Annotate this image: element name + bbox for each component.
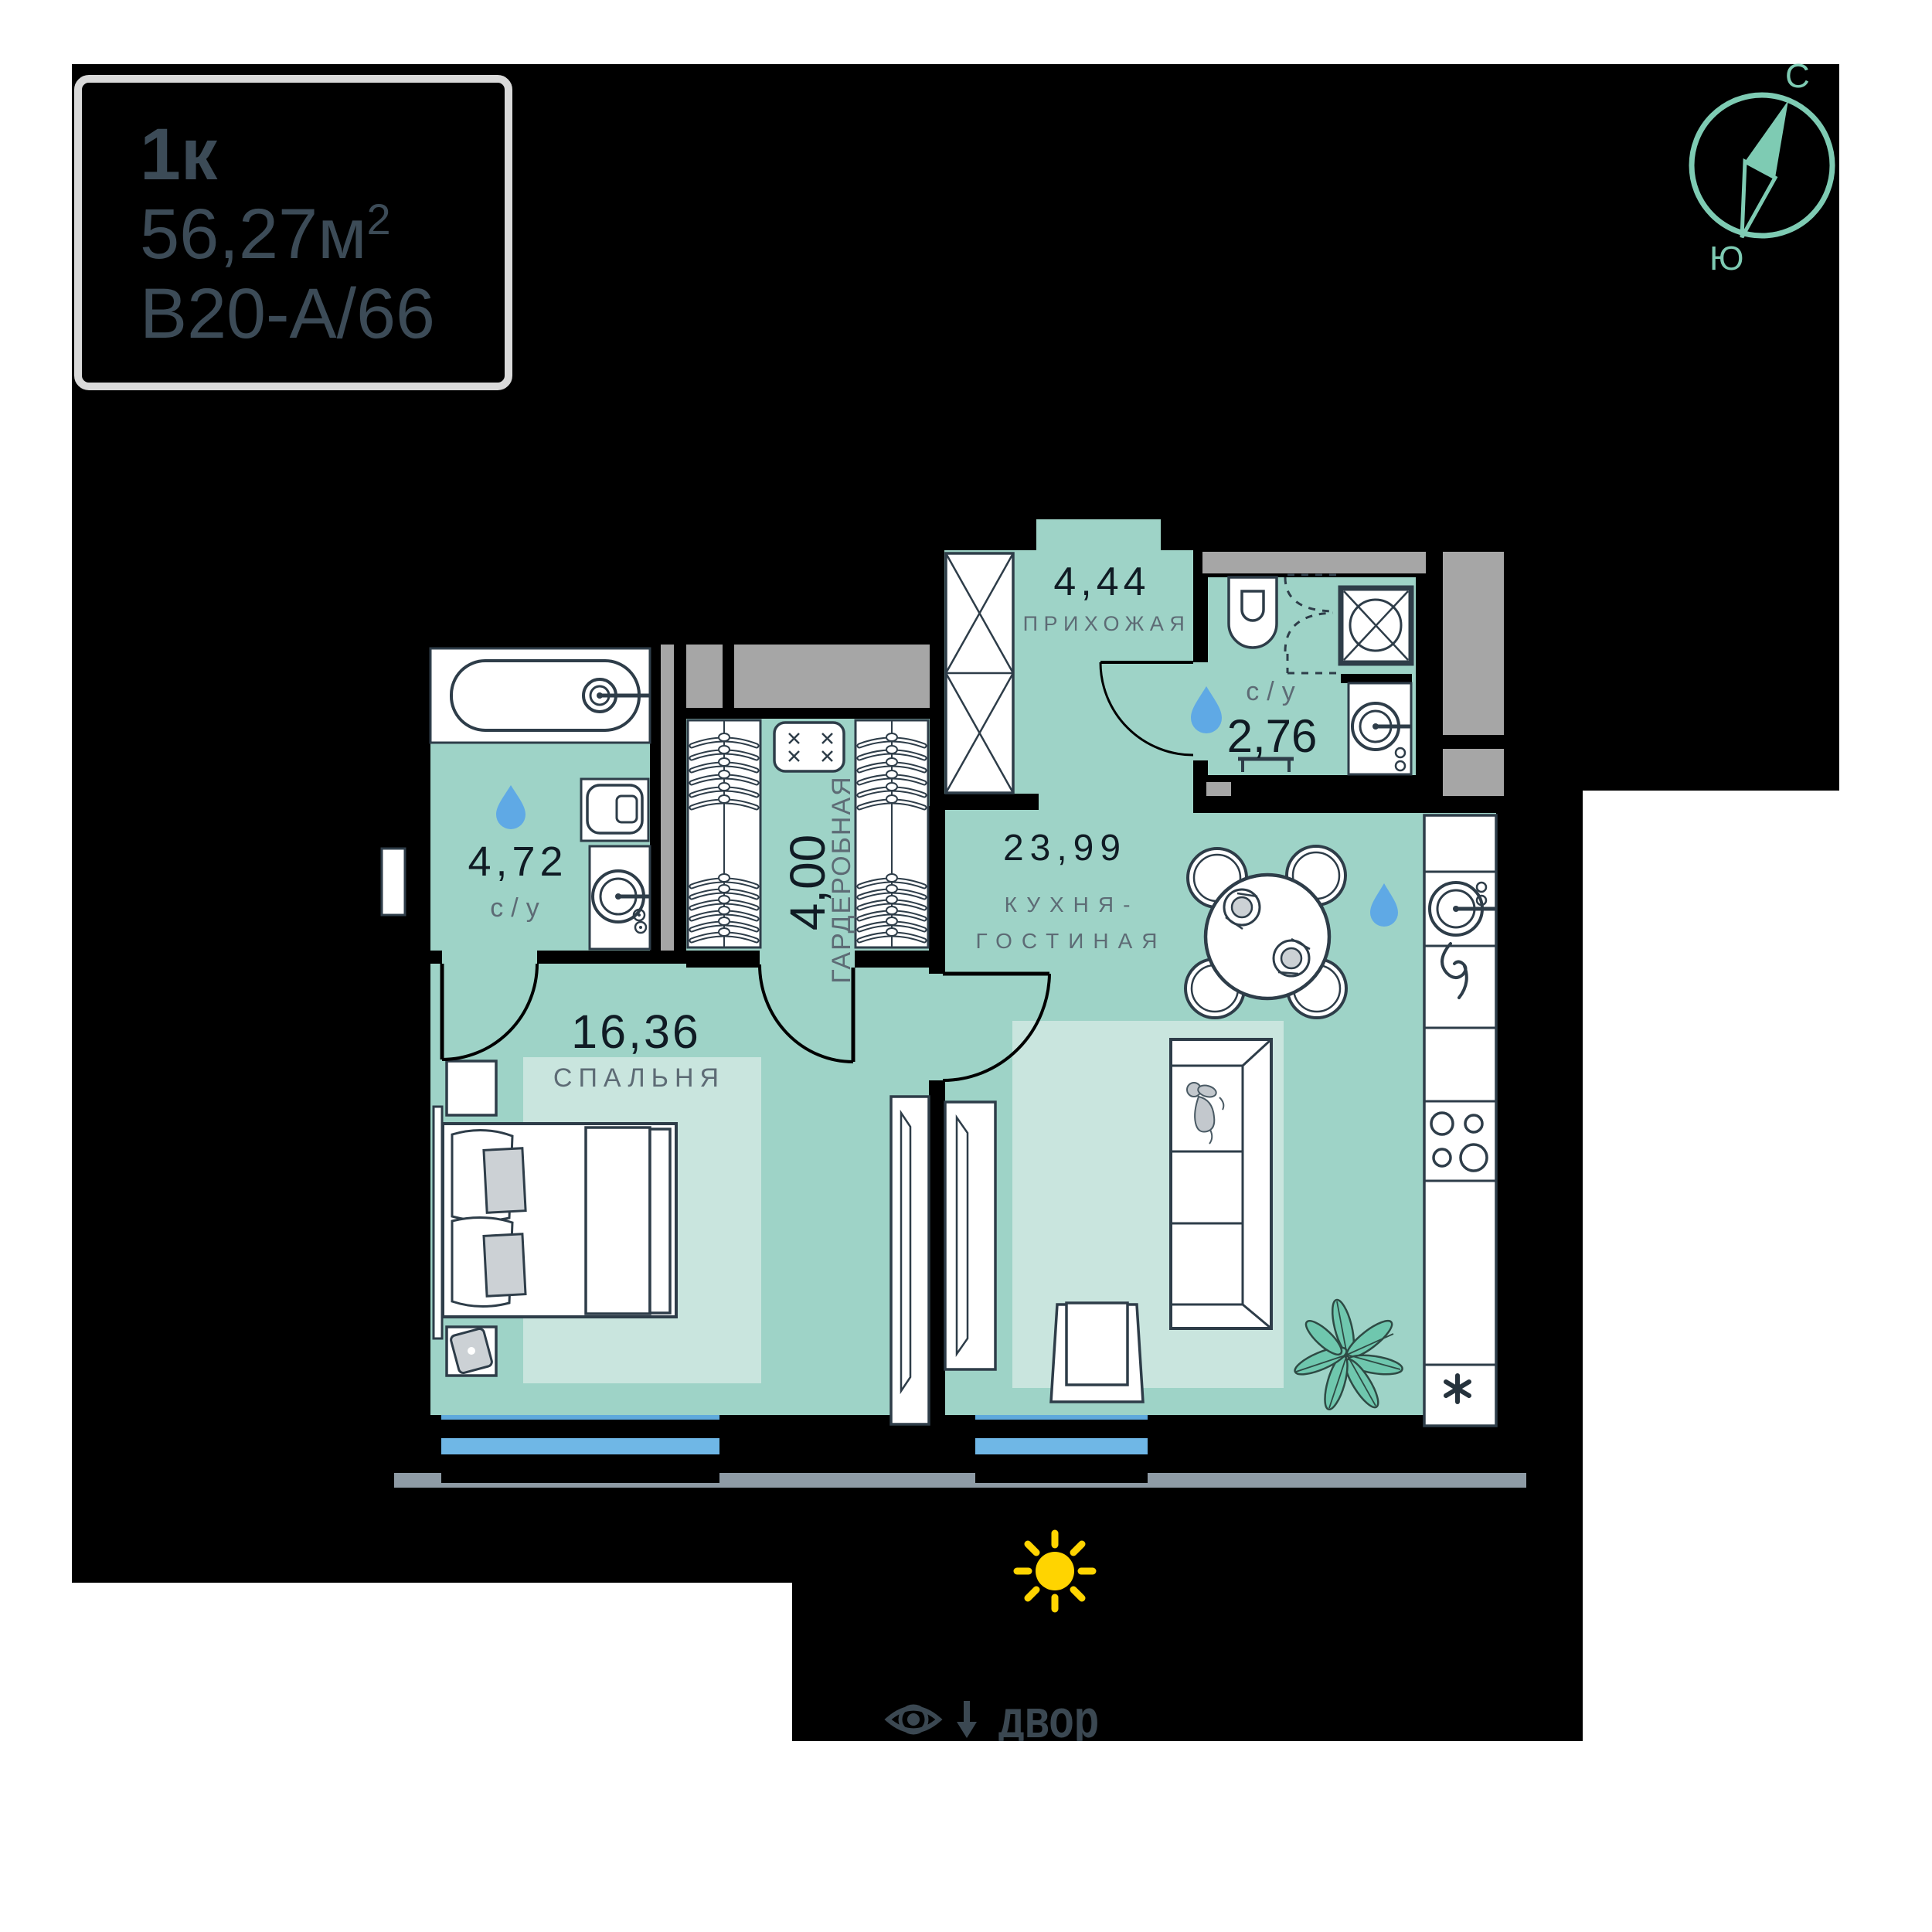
svg-text:С: С [1785,57,1810,95]
svg-text:с/у: с/у [490,893,546,923]
svg-text:56,27м2: 56,27м2 [140,195,391,274]
svg-text:СПАЛЬНЯ: СПАЛЬНЯ [553,1063,725,1093]
svg-text:с/у: с/у [1246,677,1302,706]
svg-text:двор: двор [998,1689,1099,1749]
svg-text:ГАРДЕРОБНАЯ: ГАРДЕРОБНАЯ [827,775,856,983]
svg-text:ПРИХОЖАЯ: ПРИХОЖАЯ [1023,612,1191,635]
svg-text:4,72: 4,72 [468,838,567,885]
svg-text:В20-А/66: В20-А/66 [140,274,435,353]
svg-text:ГОСТИНАЯ: ГОСТИНАЯ [975,929,1166,953]
svg-text:16,36: 16,36 [571,1005,701,1058]
svg-text:23,99: 23,99 [1003,828,1127,869]
svg-text:1к: 1к [140,114,218,196]
svg-text:Ю: Ю [1709,240,1743,277]
svg-text:КУХНЯ-: КУХНЯ- [1005,893,1140,917]
svg-text:4,44: 4,44 [1053,560,1150,604]
svg-text:2,76: 2,76 [1227,710,1318,762]
